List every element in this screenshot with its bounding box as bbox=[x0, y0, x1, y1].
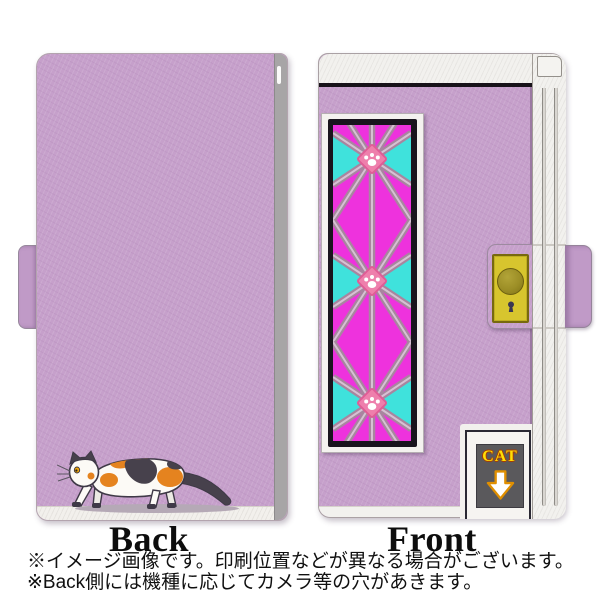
snap-button-icon bbox=[497, 268, 524, 295]
note-line-2: ※Back側には機種に応じてカメラ等の穴があきます。 bbox=[27, 572, 482, 593]
back-spine-edge bbox=[274, 54, 287, 520]
clasp-strap-back-tab bbox=[18, 245, 38, 329]
flap-frame: CAT bbox=[465, 430, 531, 519]
spine-highlight bbox=[277, 66, 281, 84]
clasp-strap bbox=[487, 244, 532, 329]
flap-inner: CAT bbox=[476, 444, 524, 508]
strap-crease-top bbox=[533, 244, 566, 246]
clasp-strap-end bbox=[565, 245, 592, 328]
flap-label: CAT bbox=[477, 448, 523, 466]
case-front-cover: CAT bbox=[318, 53, 565, 518]
front-spine bbox=[532, 54, 566, 519]
note-line-1: ※イメージ画像です。印刷位置などが異なる場合がございます。 bbox=[27, 551, 574, 572]
keyhole-icon bbox=[507, 301, 515, 313]
strap-crease-bottom bbox=[533, 327, 566, 329]
product-image: CAT Back Front ※イメージ画像です。印刷位置などが異なる場合がござ… bbox=[0, 0, 600, 600]
flap-outline: CAT bbox=[460, 424, 536, 519]
case-back-cover bbox=[36, 53, 288, 521]
front-top-trim-line bbox=[319, 83, 534, 87]
spine-corner-square bbox=[537, 56, 562, 77]
window-frame bbox=[328, 119, 417, 447]
down-arrow-icon bbox=[486, 469, 515, 501]
clasp-button-panel bbox=[492, 254, 529, 323]
spine-groove bbox=[554, 88, 558, 506]
spine-groove bbox=[542, 88, 546, 506]
stained-glass-window bbox=[321, 113, 424, 453]
stained-glass-pattern bbox=[333, 125, 411, 441]
front-top-edge bbox=[319, 54, 564, 83]
calico-cat-illustration bbox=[57, 450, 247, 514]
